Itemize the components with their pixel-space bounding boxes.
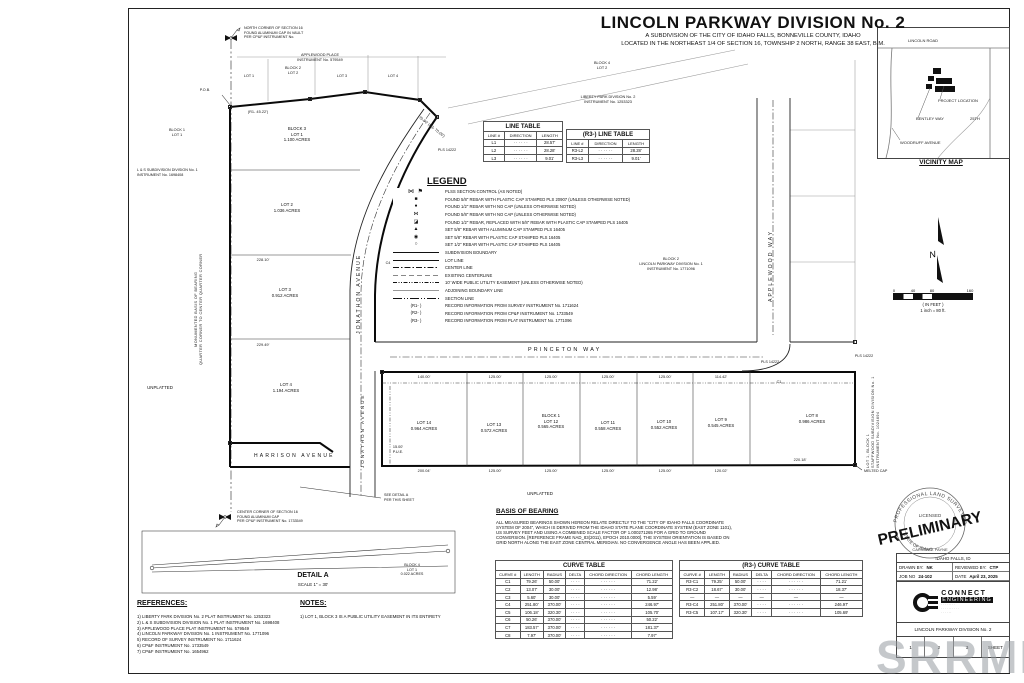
legend-item: ADJOINING BOUNDARY LINE: [393, 287, 661, 295]
legend-symbol-icon: [393, 275, 439, 276]
legend-item: ■FOUND 5/8" REBAR WITH PLASTIC CAP STAMP…: [393, 196, 661, 204]
applewood-lot3-label: LOT 3: [337, 74, 347, 79]
dim-bottom-lot11: 125.00': [602, 468, 615, 473]
jonathon-avenue-label-south: JONATHON AVENUE: [360, 394, 365, 469]
legend-item-text: ADJOINING BOUNDARY LINE: [445, 288, 503, 293]
svg-text:N: N: [928, 249, 937, 260]
pls-14222-label-b: PLS 14222: [761, 360, 779, 365]
division1-block2-label: BLOCK 2LINCOLN PARKWAY DIVISION No. 1INS…: [639, 257, 703, 272]
scale-ticks: 0 40 80 160: [893, 288, 973, 293]
legend-item: LOT LINE: [393, 256, 661, 264]
curve-c4-label: C4: [386, 261, 391, 266]
titleblock-credits: DRAWN BY:NK REVIEWED BY:CTP JOB NO24-102…: [897, 563, 1009, 582]
dim-bottom-lot14: 200.04': [418, 468, 431, 473]
legend-symbol-icon: ○: [393, 242, 439, 247]
dim-top-lot11: 125.00': [602, 374, 615, 379]
legend-item-text: FOUND 5/8" REBAR WITH NO CAP (UNLESS OTH…: [445, 212, 576, 217]
legend-symbol-icon: [393, 298, 439, 299]
applewood-block2-lot2-label: BLOCK 2LOT 2: [285, 66, 301, 76]
block3-lot3-label: LOT 30.912 ACRES: [272, 287, 299, 298]
block1-lot14-label: LOT 140.964 ACRES: [411, 420, 438, 431]
legend-item-text: SET 1/2" REBAR WITH PLASTIC CAP STAMPED …: [445, 242, 560, 247]
legend-item: ○SET 1/2" REBAR WITH PLASTIC CAP STAMPED…: [393, 241, 661, 249]
dim-top-lot12: 125.00': [545, 374, 558, 379]
legend-symbol-icon: [393, 260, 439, 261]
pue-label: 15.00'P.U.E.: [393, 445, 403, 454]
block1-lot8-label: LOT 80.986 ACRES: [799, 413, 826, 424]
legend-item-text: SET 5/8" REBAR WITH ALUMINUM CAP STAMPED…: [445, 227, 565, 232]
detail-a-title: DETAIL A: [297, 572, 328, 581]
scale-unit: ( IN FEET ): [893, 302, 973, 307]
see-detail-a-note: SEE DETAIL APER THIS SHEET: [384, 493, 414, 502]
center-section-corner-icon: [216, 514, 231, 527]
princeton-way-label: PRINCETON WAY: [528, 347, 601, 353]
vicinity-25th-label: 25TH: [970, 116, 980, 121]
legend-symbol-icon: ⋈ ⚑: [393, 189, 439, 195]
legend-item-text: CENTER LINE: [445, 265, 473, 270]
detail-a-lot-label: BLOCK 4LOT 10.022 ACRES: [401, 563, 424, 577]
princeton-applewood-return-curve: [742, 344, 790, 371]
legend-item-text: EXISTING CENTERLINE: [445, 273, 492, 278]
notes-title: NOTES:: [300, 600, 326, 607]
legend-item: ◉SET 5/8" REBAR WITH PLASTIC CAP STAMPED…: [393, 234, 661, 242]
harrison-avenue-label: HARRISON AVENUE: [254, 453, 335, 459]
scale-bar: 0 40 80 160 ( IN FEET ) 1 inch = 80 ft.: [893, 288, 973, 313]
block3-lot1-label: BLOCK 3LOT 11.100 ACRES: [284, 126, 311, 143]
drawn-by-value: NK: [926, 565, 932, 570]
pob-label: P.O.B.: [200, 88, 210, 93]
pls-14222-label-a: PLS 14222: [438, 148, 456, 153]
ls-subdivision-label: L & S SUBDIVISION DIVISION No. 1INSTRUME…: [137, 168, 198, 177]
references-title: REFERENCES:: [137, 600, 187, 607]
project-location-blocks: [926, 68, 955, 92]
legend-symbol-icon: ◉: [393, 235, 439, 240]
vicinity-lincoln-road-label: LINCOLN ROAD: [908, 38, 938, 43]
staffwood-subdivision-label: LOT 1, BLOCK 1STAFFWOOD SUBDIVISION DIVI…: [866, 376, 881, 468]
dim-bottom-lot13: 125.00': [489, 468, 502, 473]
legend-item-text: SET 5/8" REBAR WITH PLASTIC CAP STAMPED …: [445, 235, 560, 240]
applewood-way-label: APPLEWOOD WAY: [768, 230, 774, 302]
dim-bottom-lot8: 220.18': [794, 457, 807, 462]
legend-item: SECTION LINE: [393, 294, 661, 302]
legend-item-text: FOUND 1/2" REBAR, REPLACED WITH 5/8" REB…: [445, 220, 628, 225]
vicinity-roads: [878, 28, 1009, 158]
legend: ⋈ ⚑PLSS SECTION CONTROL (AS NOTED)■FOUND…: [393, 188, 661, 325]
legend-symbol-icon: [393, 267, 439, 268]
center-corner-note: CENTER CORNER OF SECTION 16FOUND ALUMINU…: [237, 510, 303, 524]
legend-item-text: RECORD INFORMATION FROM CP&F INSTRUMENT …: [445, 311, 573, 316]
dim-top-lot13: 125.00': [489, 374, 502, 379]
references-list: 1) LIBERTY PARK DIVISION No. 2 PLAT INST…: [137, 614, 279, 655]
date-value: April 23, 2025: [969, 574, 997, 579]
curve-table: CURVE TABLE CURVE #LENGTH RADIUSDELTA CH…: [495, 560, 673, 639]
dim-top-lot10: 125.00': [659, 374, 672, 379]
legend-symbol-icon: ⋈: [393, 212, 439, 217]
logo-bars-icon: [928, 596, 938, 609]
lot4-south-line: [230, 443, 333, 452]
north-corner-note: NORTH CORNER OF SECTION 16FOUND ALUMINUM…: [244, 26, 303, 40]
applewood-place-label: APPLEWOOD PLACEINSTRUMENT No. 579549: [297, 53, 343, 63]
srrmls-watermark: SRRMLS: [876, 630, 1024, 683]
basis-of-bearing-title: BASIS OF BEARING: [496, 508, 558, 515]
legend-item: CENTER LINE: [393, 264, 661, 272]
firm-name: CONNECT: [941, 590, 993, 598]
north-arrow-icon: N: [925, 215, 955, 287]
legend-symbol-icon: (R3- ): [393, 319, 439, 323]
division1-block2-lines: [790, 60, 855, 340]
applewood-way-edges: [757, 98, 790, 342]
legend-item: ◪FOUND 1/2" REBAR, REPLACED WITH 5/8" RE…: [393, 218, 661, 226]
block3-lot4-label: LOT 41.194 ACRES: [273, 382, 300, 393]
dim-block3-229: 229.49': [257, 342, 270, 347]
block1-lot10-label: LOT 100.552 ACRES: [651, 419, 678, 430]
sheet-subtitle-1: A SUBDIVISION OF THE CITY OF IDAHO FALLS…: [645, 33, 860, 39]
scale-bar-graphic: [893, 293, 973, 300]
dim-top-lot9: 114.42': [715, 374, 727, 379]
job-no-value: 24-102: [918, 574, 932, 579]
ls-block1-lot1-label: BLOCK 1LOT 1: [169, 128, 185, 138]
block1-lot12-label: BLOCK 1LOT 120.565 ACRES: [538, 413, 565, 430]
legend-item: (R2- )RECORD INFORMATION FROM CP&F INSTR…: [393, 310, 661, 318]
unplatted-label-west: UNPLATTED: [147, 385, 173, 391]
legend-item-text: FOUND 5/8" REBAR WITH PLASTIC CAP STAMPE…: [445, 197, 630, 202]
legend-item: ⋈FOUND 5/8" REBAR WITH NO CAP (UNLESS OT…: [393, 211, 661, 219]
legend-item: SUBDIVISION BOUNDARY: [393, 249, 661, 257]
legend-symbol-icon: (R1- ): [393, 304, 439, 308]
connect-engineering-logo: CONNECT ENGINEERING · · · · · · · ·· · ·…: [897, 582, 1009, 623]
dim-r3: 70.00' (R3- 70.00'): [418, 115, 446, 139]
detail-a-scale: SCALE 1" = 30': [298, 582, 328, 588]
liberty-park-label: LIBERTY PARK DIVISION No. 2INSTRUMENT No…: [581, 95, 636, 105]
legend-symbol-icon: ●: [393, 204, 439, 209]
vicinity-bentley-way-label: BENTLEY WAY: [916, 116, 944, 121]
vicinity-map-title: VICINITY MAP: [919, 159, 963, 166]
legend-symbol-icon: [393, 282, 439, 283]
dim-top-lot14: 140.00': [418, 374, 431, 379]
legend-item: 10' WIDE PUBLIC UTILITY EASEMENT (UNLESS…: [393, 279, 661, 287]
plat-sheet: LINCOLN PARKWAY DIVISION No. 2 A SUBDIVI…: [0, 0, 1024, 683]
block1-lot13-label: LOT 130.572 ACRES: [481, 422, 508, 433]
r3-curve-table: (R3-) CURVE TABLE CURVE #LENGTH RADIUSDE…: [679, 560, 863, 617]
legend-symbol-icon: ▲: [393, 227, 439, 232]
curve-c1-label: C1: [777, 380, 782, 385]
block1-lot11-label: LOT 110.558 ACRES: [595, 420, 622, 431]
applewood-lot4-label: LOT 4: [388, 74, 398, 79]
legend-item-text: SECTION LINE: [445, 296, 474, 301]
applewood-lot1-label: LOT 1: [244, 74, 254, 79]
legend-item-text: PLSS SECTION CONTROL (AS NOTED): [445, 189, 522, 194]
r3-line-table: (R3-) LINE TABLE LINE #DIRECTIONLENGTH R…: [566, 129, 650, 163]
dim-bottom-lot9: 120.02': [715, 468, 728, 473]
legend-title: LEGEND: [427, 176, 467, 187]
legend-item: ●FOUND 1/2" REBAR WITH NO CAP (UNLESS OT…: [393, 203, 661, 211]
vicinity-woodruff-avenue-label: WOODRUFF AVENUE: [900, 140, 941, 145]
vicinity-project-location-label: PROJECT LOCATION: [938, 98, 978, 103]
dim-bottom-lot12: 125.00': [545, 468, 558, 473]
firm-address: · · · · · · · ·· · · · · · · · · ·· · · …: [941, 603, 993, 614]
legend-item-text: LOT LINE: [445, 258, 464, 263]
legend-symbol-icon: [393, 252, 439, 253]
legend-item-text: FOUND 1/2" REBAR WITH NO CAP (UNLESS OTH…: [445, 204, 576, 209]
vicinity-map: LINCOLN ROAD PROJECT LOCATION BENTLEY WA…: [877, 27, 1010, 159]
legend-symbol-icon: ◪: [393, 220, 439, 225]
legend-symbol-icon: (R2- ): [393, 311, 439, 315]
sheet-title: LINCOLN PARKWAY DIVISION No. 2: [601, 13, 906, 33]
dim-r1: (R1- 45.22'): [248, 109, 268, 114]
jonathon-avenue-label-north: JONATHON AVENUE: [356, 254, 362, 334]
north-section-corner-icon: [225, 28, 240, 41]
scale-note: 1 inch = 80 ft.: [893, 308, 973, 313]
legend-item-text: RECORD INFORMATION FROM SURVEY INSTRUMEN…: [445, 303, 578, 308]
preliminary-stamp: PROFESSIONAL LAND SURVEYOR STATE OF IDAH…: [872, 477, 990, 563]
dim-bottom-lot10: 125.00': [659, 468, 672, 473]
legend-item: (R3- )RECORD INFORMATION FROM PLAT INSTR…: [393, 317, 661, 325]
block3-lot-lines: [230, 170, 360, 339]
legend-item: (R1- )RECORD INFORMATION FROM SURVEY INS…: [393, 302, 661, 310]
block1-lot9-label: LOT 90.545 ACRES: [708, 417, 735, 428]
legend-item: ▲SET 5/8" REBAR WITH ALUMINUM CAP STAMPE…: [393, 226, 661, 234]
reviewed-by-value: CTP: [989, 565, 998, 570]
legend-symbol-icon: ■: [393, 197, 439, 202]
legend-item-text: SUBDIVISION BOUNDARY: [445, 250, 497, 255]
seal-name-text: CARSON T. PAYNE: [912, 547, 948, 552]
liberty-block4-lot2-label: BLOCK 4LOT 2: [594, 61, 610, 71]
dim-block3-228: 228.10': [257, 257, 270, 262]
legend-symbol-icon: [393, 290, 439, 291]
pls-14222-label-c: PLS 14222: [855, 354, 873, 359]
block3-lot2-label: LOT 21.036 ACRES: [274, 202, 301, 213]
notes-list: 1) LOT 1, BLOCK 3 IS A PUBLIC UTILITY EA…: [300, 614, 441, 620]
legend-item: EXISTING CENTERLINE: [393, 272, 661, 280]
sheet-subtitle-2: LOCATED IN THE NORTHEAST 1/4 OF SECTION …: [621, 41, 885, 47]
basis-of-bearing-text: ALL MEASURED BEARINGS SHOWN HEREON RELAT…: [496, 520, 732, 545]
melted-cap-label: MELTED CAP: [864, 469, 887, 474]
legend-item-text: RECORD INFORMATION FROM PLAT INSTRUMENT …: [445, 318, 572, 323]
monumented-basis-label: MONUMENTED BASIS OF BEARINGQUARTER CORNE…: [194, 253, 204, 365]
legend-item-text: 10' WIDE PUBLIC UTILITY EASEMENT (UNLESS…: [445, 280, 583, 285]
legend-item: ⋈ ⚑PLSS SECTION CONTROL (AS NOTED): [393, 188, 661, 196]
block1-lots-boundary: [382, 372, 855, 466]
line-table: LINE TABLE LINE #DIRECTIONLENGTH L1· · ·…: [483, 121, 563, 162]
unplatted-label-south: UNPLATTED: [527, 491, 553, 497]
